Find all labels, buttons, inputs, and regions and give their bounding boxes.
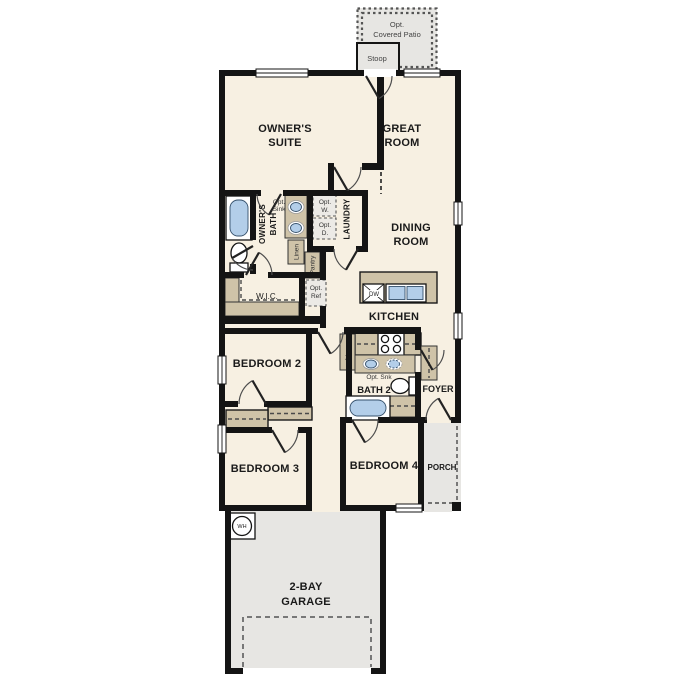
- bath2-vanity: [355, 355, 415, 373]
- porch-edge-opening: [424, 504, 452, 512]
- opt-ref-label-1: Opt.: [310, 285, 322, 292]
- opt-w-label-1: Opt.: [319, 199, 331, 206]
- bedroom3-closet: [226, 410, 268, 428]
- range-icon: [378, 332, 404, 356]
- stoop-label: Stoop: [367, 54, 387, 63]
- bedroom4-closet: [388, 396, 418, 417]
- laundry-label: LAUNDRY: [343, 198, 352, 239]
- bath-sink-icon: [291, 203, 302, 212]
- foyer-label: FOYER: [422, 384, 454, 394]
- window-icon: [218, 425, 226, 453]
- floor-plan-drawing: Opt. Covered Patio Stoop PORCH 2-BAY GAR…: [0, 0, 687, 687]
- opt-w-label-2: W.: [321, 207, 329, 214]
- linen-hall-label: Linen: [294, 244, 301, 260]
- pantry-label: Pantry: [310, 255, 317, 275]
- window-icon: [454, 313, 462, 339]
- optional-refrigerator: Opt. Ref: [306, 280, 326, 306]
- great-room-label-1: GREAT: [383, 123, 422, 135]
- linen-closet-hall: Linen: [288, 240, 304, 264]
- water-heater: WH: [229, 513, 255, 539]
- floor-plan-page: Opt. Covered Patio Stoop PORCH 2-BAY GAR…: [0, 0, 687, 687]
- bedroom3-label: BEDROOM 3: [231, 463, 299, 475]
- kitchen-island: DW: [360, 272, 437, 303]
- window-icon: [256, 69, 308, 77]
- bathtub-icon: [350, 400, 386, 416]
- bath-sink-icon: [291, 224, 302, 233]
- bath-sink-icon: [366, 360, 377, 368]
- bath2-toilet: [391, 377, 417, 395]
- opt-sink-label-2: Sink: [273, 206, 286, 213]
- opt-ref-label-2: Ref: [311, 293, 321, 300]
- bedroom2-closet: [268, 407, 312, 420]
- patio-label-1: Opt.: [390, 20, 404, 29]
- owners-suite-label-1: OWNER'S: [258, 123, 312, 135]
- optional-washer: Opt. W.: [313, 195, 336, 216]
- garage-label-1: 2-BAY: [290, 581, 323, 593]
- dining-room-label-1: DINING: [391, 222, 431, 234]
- owners-suite-label-2: SUITE: [268, 137, 301, 149]
- great-room-label-2: ROOM: [384, 137, 419, 149]
- porch-post: [452, 502, 461, 511]
- owners-tub: [226, 196, 252, 240]
- opt-snk-label: Opt. Snk: [366, 374, 392, 381]
- patio-label-2: Covered Patio: [373, 30, 421, 39]
- optional-sink-icon: [389, 360, 400, 368]
- dw-label: DW: [369, 292, 379, 298]
- garage-hall-opening: [312, 504, 340, 512]
- dining-room-label-2: ROOM: [393, 236, 428, 248]
- opt-d-label-2: D.: [322, 230, 329, 237]
- stoop: Stoop: [357, 43, 399, 72]
- garage-label-2: GARAGE: [281, 596, 330, 608]
- toilet-icon: [391, 379, 409, 394]
- window-icon: [454, 202, 462, 225]
- bedroom2-label: BEDROOM 2: [233, 358, 301, 370]
- porch-label: PORCH: [428, 463, 457, 472]
- bedroom4-label: BEDROOM 4: [350, 460, 419, 472]
- porch: PORCH: [424, 423, 461, 505]
- window-icon: [218, 356, 226, 384]
- bath2-tub: [346, 396, 390, 420]
- window-icon: [404, 69, 440, 77]
- kitchen-counter: [355, 332, 421, 356]
- stoop-door-opening: [364, 69, 396, 77]
- owners-bath-label-1: OWNER'S: [258, 204, 267, 244]
- wh-label: WH: [237, 524, 246, 530]
- opt-d-label-1: Opt.: [319, 222, 331, 229]
- window-icon: [396, 504, 422, 512]
- bathtub-icon: [230, 200, 248, 236]
- opt-sink-label-1: Opt.: [273, 199, 285, 206]
- bath2-label: BATH 2: [357, 385, 391, 396]
- wic-label: W.I.C.: [256, 292, 278, 301]
- kitchen-label: KITCHEN: [369, 311, 419, 323]
- owners-bath-vanity: [285, 195, 307, 238]
- owners-bath-label-2: BATH: [269, 213, 278, 236]
- optional-dryer: Opt. D.: [313, 218, 336, 239]
